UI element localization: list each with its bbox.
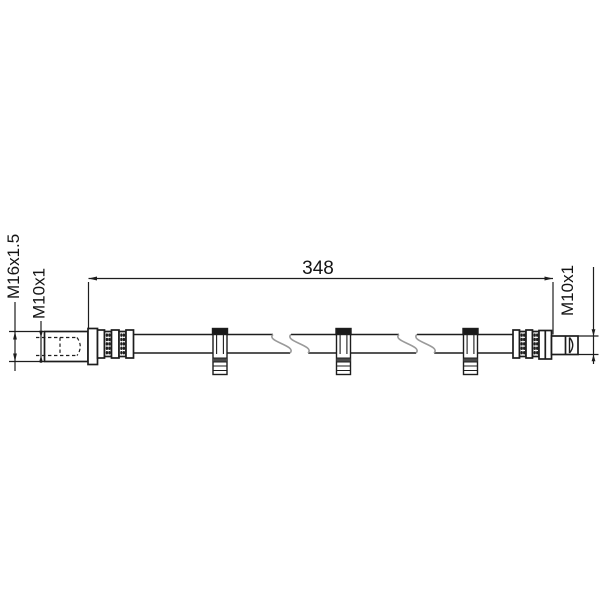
- clip-band: [213, 334, 227, 375]
- clip-slat-dark: [464, 358, 478, 362]
- clip-slat-dark: [213, 358, 227, 362]
- left-outer-thread-label: M16x1.5: [4, 234, 23, 299]
- canvas-background: [0, 0, 600, 600]
- left-fitting-body: [45, 332, 89, 362]
- left-inner-thread-label: M10x1: [30, 268, 49, 319]
- left-fitting-hex-nut: [88, 329, 98, 365]
- clip-band: [337, 334, 351, 375]
- hose-clip-2: [336, 329, 351, 375]
- clip-cap: [336, 329, 351, 335]
- hose-clip-1: [213, 329, 228, 375]
- hose-clip-3: [463, 329, 478, 375]
- clip-cap: [213, 329, 228, 335]
- left-crimp-ferrule: [98, 330, 134, 358]
- ferrule-ring: [126, 330, 134, 358]
- right-thread-label: M10x1: [558, 265, 577, 316]
- clip-cap: [463, 329, 478, 335]
- right-crimp-ferrule: [513, 330, 539, 358]
- ferrule-ring: [526, 330, 533, 358]
- ferrule-ring: [112, 330, 120, 358]
- clip-band: [464, 334, 478, 375]
- hose-length-label: 348: [302, 258, 334, 279]
- ferrule-ring: [513, 330, 520, 358]
- ferrule-ring: [98, 330, 105, 358]
- clip-slat-dark: [337, 358, 351, 362]
- brake-hose-technical-drawing: 348 M16x1.5 M10x1 M10x1: [0, 0, 600, 600]
